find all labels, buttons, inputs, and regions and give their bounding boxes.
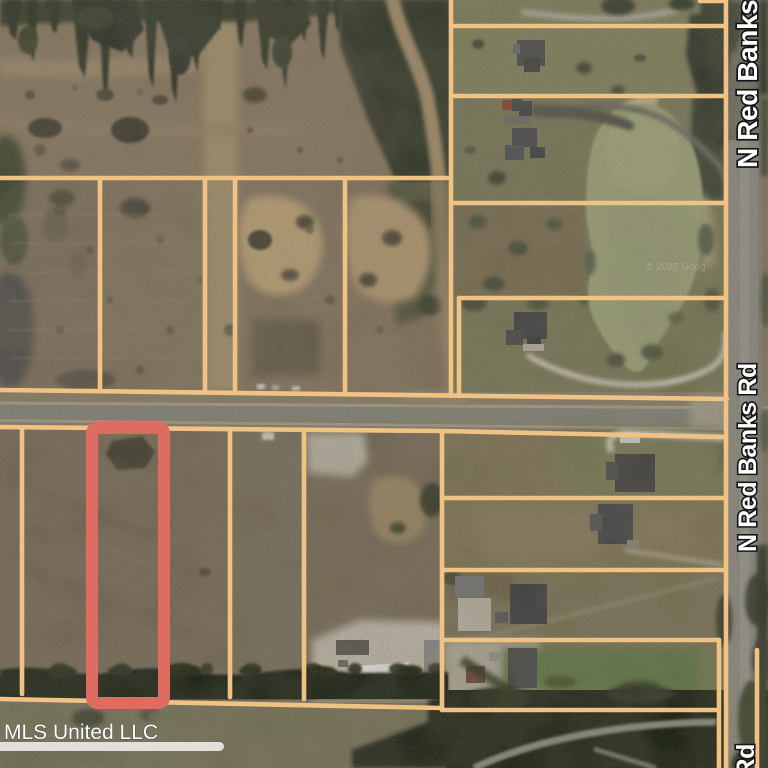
svg-text:N Red Banks Rd: N Red Banks Rd: [732, 744, 760, 768]
svg-text:N Red Banks Rd: N Red Banks Rd: [732, 0, 763, 168]
svg-text:MLS United LLC: MLS United LLC: [4, 721, 158, 744]
svg-text:N Red Banks Rd: N Red Banks Rd: [734, 363, 762, 552]
